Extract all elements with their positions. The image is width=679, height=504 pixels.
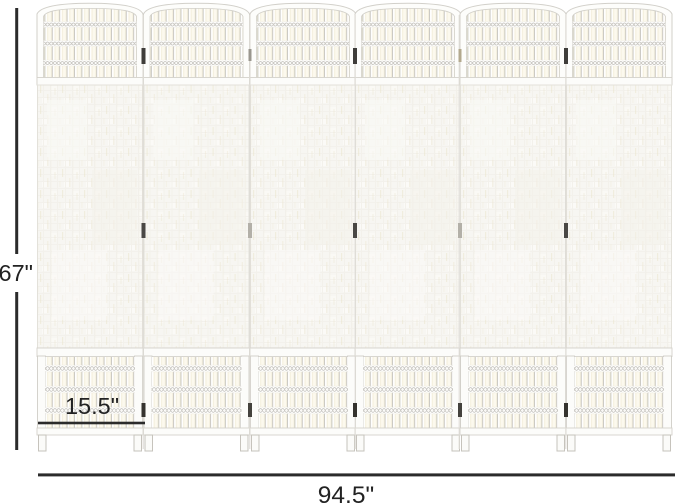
svg-text:67": 67" xyxy=(0,260,33,286)
svg-text:15.5": 15.5" xyxy=(65,393,119,419)
svg-text:94.5": 94.5" xyxy=(318,482,374,504)
